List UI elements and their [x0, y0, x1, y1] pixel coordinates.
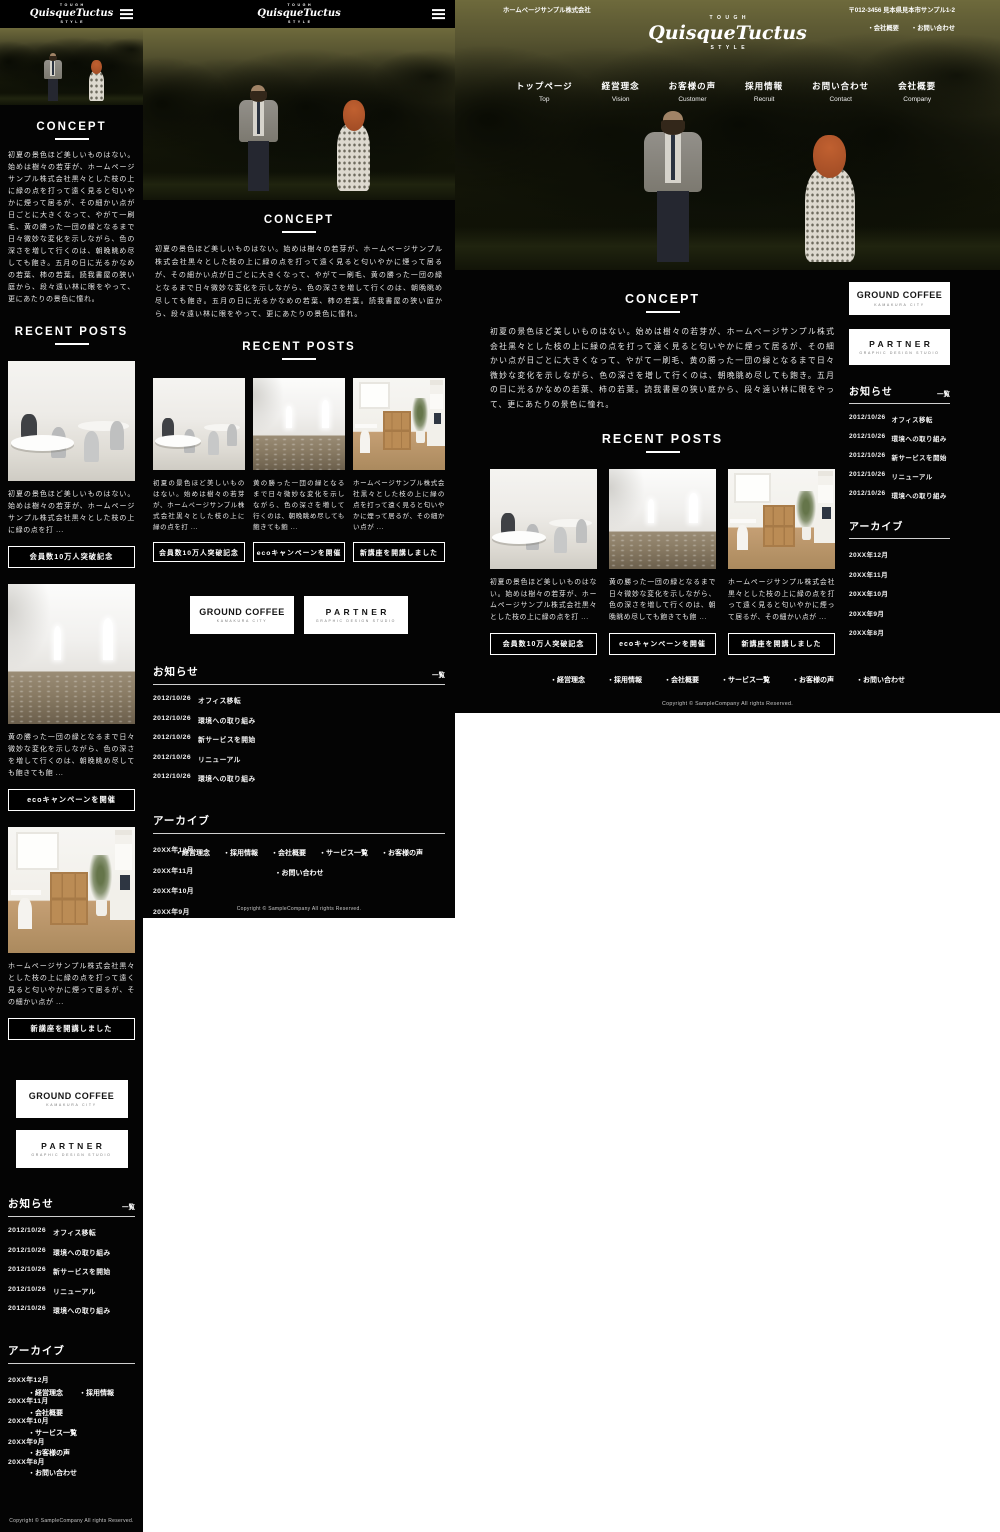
footer-link[interactable]: ・採用情報: [79, 1388, 114, 1398]
banner-ground-coffee[interactable]: GROUND COFFEE KAMAKURA CITY: [16, 1080, 128, 1118]
post-thumbnail-homeoffice: [728, 469, 835, 569]
sidebar: GROUND COFFEE KAMAKURA CITY PARTNER GRAP…: [849, 282, 950, 655]
concept-text: 初夏の景色ほど美しいものはない。始めは樹々の若芽が、ホームページサンプル株式会社…: [8, 150, 135, 306]
copyright: Copyright © SampleCompany All rights Res…: [143, 906, 455, 912]
post-thumbnail-room: [609, 469, 716, 569]
footer-link[interactable]: ・経営理念: [550, 675, 585, 685]
archive-item[interactable]: 20XX年12月: [8, 1374, 135, 1384]
recent-post-card: 初夏の景色ほど美しいものはない。始めは樹々の若芽が、ホームページサンプル株式会社…: [8, 361, 135, 568]
mobile-header: TOUGH QuisqueTuctus STYLE: [0, 0, 143, 28]
header-link-contact[interactable]: ・お問い合わせ: [911, 23, 955, 32]
news-item[interactable]: 2012/10/26環境への取り組み: [153, 715, 445, 725]
post-excerpt: ホームページサンプル株式会社黒々とした枝の上に緑の点を打って遠く見ると匂いやかに…: [8, 961, 135, 1009]
post-link-button[interactable]: 新講座を開講しました: [728, 633, 835, 655]
footer-link[interactable]: ・会社概要: [271, 848, 306, 858]
recent-post-card: ホームページサンプル株式会社黒々とした枝の上に緑の点を打って遠く見ると匂いやかに…: [728, 469, 835, 655]
footer-link[interactable]: ・経営理念: [175, 848, 210, 858]
news-item[interactable]: 2012/10/26オフィス移転: [8, 1227, 135, 1237]
news-title: お知らせ: [849, 383, 893, 398]
site-logo[interactable]: TOUGH QuisqueTuctus STYLE: [30, 4, 113, 24]
header-link-company[interactable]: ・会社概要: [867, 23, 898, 32]
post-thumbnail-room: [8, 584, 135, 724]
site-logo[interactable]: TOUGH QuisqueTuctus STYLE: [257, 4, 340, 24]
post-link-button[interactable]: ecoキャンペーンを開催: [253, 542, 345, 562]
recent-post-card: 初夏の景色ほど美しいものはない。始めは樹々の若芽が、ホームページサンプル株式会社…: [490, 469, 597, 655]
post-link-button[interactable]: ecoキャンペーンを開催: [609, 633, 716, 655]
archive-header: アーカイブ: [153, 813, 445, 834]
archive-item[interactable]: 20XX年10月: [849, 588, 950, 598]
archive-title: アーカイブ: [8, 1343, 65, 1358]
post-excerpt: 初夏の景色ほど美しいものはない。始めは樹々の若芽が、ホームページサンプル株式会社…: [8, 489, 135, 537]
news-item[interactable]: 2012/10/26新サービスを開始: [153, 734, 445, 744]
banner-area: GROUND COFFEE KAMAKURA CITY PARTNER GRAP…: [143, 596, 455, 634]
footer-link[interactable]: ・お問い合わせ: [856, 675, 905, 685]
post-excerpt: ホームページサンプル株式会社黒々とした枝の上に緑の点を打って遠く見ると匂いやかに…: [353, 478, 445, 533]
post-thumbnail-homeoffice: [353, 378, 445, 470]
banner-partner[interactable]: PARTNER GRAPHIC DESIGN STUDIO: [304, 596, 408, 634]
news-item[interactable]: 2012/10/26環境への取り組み: [153, 773, 445, 783]
post-excerpt: 黄の勝った一団の緑となるまで日々微妙な変化を示しながら、色の深さを増して行くのは…: [253, 478, 345, 533]
logo-tagline-top: TOUGH: [285, 4, 314, 8]
nav-item-top[interactable]: トップページTop: [516, 80, 573, 103]
nav-item-vision[interactable]: 経営理念Vision: [599, 80, 643, 103]
archive-item[interactable]: 20XX年9月: [849, 608, 950, 618]
nav-item-company[interactable]: 会社概要Company: [895, 80, 939, 103]
recent-post-card: 黄の勝った一団の緑となるまで日々微妙な変化を示しながら、色の深さを増して行くのは…: [253, 378, 345, 562]
logo-tagline-bottom: STYLE: [285, 21, 312, 25]
concept-text: 初夏の景色ほど美しいものはない。始めは樹々の若芽が、ホームページサンプル株式会社…: [155, 243, 443, 321]
post-link-button[interactable]: 会員数10万人突破記念: [490, 633, 597, 655]
recent-posts-title: RECENT POSTS: [0, 326, 143, 345]
post-excerpt: 黄の勝った一団の緑となるまで日々微妙な変化を示しながら、色の深さを増して行くのは…: [8, 732, 135, 780]
footer-link[interactable]: ・サービス一覧: [28, 1428, 77, 1438]
concept-title: CONCEPT: [490, 292, 835, 313]
concept-title: CONCEPT: [155, 214, 443, 233]
post-excerpt: 黄の勝った一団の緑となるまで日々微妙な変化を示しながら、色の深さを増して行くのは…: [609, 577, 716, 623]
news-more-link[interactable]: 一覧: [937, 388, 950, 398]
footer-link[interactable]: ・お客様の声: [792, 675, 834, 685]
footer-link[interactable]: ・経営理念: [28, 1388, 63, 1398]
concept-section: CONCEPT 初夏の景色ほど美しいものはない。始めは樹々の若芽が、ホームページ…: [8, 121, 135, 306]
footer-link[interactable]: ・会社概要: [28, 1408, 63, 1418]
recent-post-card: 黄の勝った一団の緑となるまで日々微妙な変化を示しながら、色の深さを増して行くのは…: [8, 584, 135, 811]
news-item[interactable]: 2012/10/26新サービスを開始: [849, 452, 950, 462]
post-excerpt: 初夏の景色ほど美しいものはない。始めは樹々の若芽が、ホームページサンプル株式会社…: [153, 478, 245, 533]
news-item[interactable]: 2012/10/26新サービスを開始: [8, 1266, 135, 1276]
news-item[interactable]: 2012/10/26オフィス移転: [849, 414, 950, 424]
post-excerpt: ホームページサンプル株式会社黒々とした枝の上に緑の点を打って遠く見ると匂いやかに…: [728, 577, 835, 623]
recent-post-card: 黄の勝った一団の緑となるまで日々微妙な変化を示しながら、色の深さを増して行くのは…: [609, 469, 716, 655]
woman-figure: [89, 60, 105, 101]
news-header: お知らせ 一覧: [153, 664, 445, 685]
news-item[interactable]: 2012/10/26リニューアル: [849, 471, 950, 481]
footer-link[interactable]: ・会社概要: [664, 675, 699, 685]
footer-nav: ・経営理念 ・採用情報 ・会社概要 ・サービス一覧 ・お客様の声 ・お問い合わせ: [143, 848, 455, 888]
archive-item[interactable]: 20XX年12月: [849, 549, 950, 559]
desktop-main: CONCEPT 初夏の景色ほど美しいものはない。始めは樹々の若芽が、ホームページ…: [490, 282, 950, 655]
nav-item-customer[interactable]: お客様の声Customer: [669, 80, 717, 103]
post-link-button[interactable]: 新講座を開講しました: [8, 1018, 135, 1040]
news-more-link[interactable]: 一覧: [432, 669, 445, 679]
news-item[interactable]: 2012/10/26環境への取り組み: [849, 490, 950, 500]
nav-item-recruit[interactable]: 採用情報Recruit: [742, 80, 786, 103]
footer-link[interactable]: ・お問い合わせ: [275, 868, 324, 878]
news-list: 2012/10/26オフィス移転 2012/10/26環境への取り組み 2012…: [153, 695, 445, 783]
concept-text: 初夏の景色ほど美しいものはない。始めは樹々の若芽が、ホームページサンプル株式会社…: [490, 325, 835, 412]
lawn-foreground: [455, 227, 1000, 270]
archive-item[interactable]: 20XX年11月: [849, 569, 950, 579]
news-item[interactable]: 2012/10/26環境への取り組み: [8, 1305, 135, 1315]
woman-figure: [336, 100, 370, 191]
archive-list: 20XX年12月 20XX年11月 20XX年10月 20XX年9月 20XX年…: [849, 549, 950, 637]
recent-post-card: ホームページサンプル株式会社黒々とした枝の上に緑の点を打って遠く見ると匂いやかに…: [8, 827, 135, 1040]
footer-link[interactable]: ・お客様の声: [28, 1448, 70, 1458]
post-thumbnail-office: [490, 469, 597, 569]
news-item[interactable]: 2012/10/26オフィス移転: [153, 695, 445, 705]
recent-post-card: 初夏の景色ほど美しいものはない。始めは樹々の若芽が、ホームページサンプル株式会社…: [153, 378, 245, 562]
recent-posts-title: RECENT POSTS: [490, 432, 835, 453]
hamburger-menu-icon[interactable]: [432, 9, 445, 19]
post-thumbnail-office: [153, 378, 245, 470]
hero-image: [0, 28, 143, 105]
logo-name: QuisqueTuctus: [257, 9, 340, 19]
concept-section: CONCEPT 初夏の景色ほど美しいものはない。始めは樹々の若芽が、ホームページ…: [155, 214, 443, 321]
lawn-foreground: [143, 172, 455, 200]
main-nav: トップページTop 経営理念Vision お客様の声Customer 採用情報R…: [455, 80, 1000, 103]
company-address: 〒012-3456 見本県見本市サンプル1-2: [848, 5, 955, 14]
news-item[interactable]: 2012/10/26環境への取り組み: [8, 1247, 135, 1257]
news-section: お知らせ 一覧 2012/10/26オフィス移転 2012/10/26環境への取…: [8, 1196, 135, 1315]
nav-item-contact[interactable]: お問い合わせContact: [812, 80, 869, 103]
copyright: Copyright © SampleCompany All rights Res…: [455, 701, 1000, 707]
news-more-link[interactable]: 一覧: [122, 1201, 135, 1211]
post-excerpt: 初夏の景色ほど美しいものはない。始めは樹々の若芽が、ホームページサンプル株式会社…: [490, 577, 597, 623]
post-link-button[interactable]: 会員数10万人突破記念: [153, 542, 245, 562]
man-figure: [237, 85, 281, 192]
post-link-button[interactable]: 新講座を開講しました: [353, 542, 445, 562]
archive-header: アーカイブ: [849, 518, 950, 539]
hero-image: [143, 28, 455, 200]
logo-tagline-bottom: STYLE: [706, 46, 749, 51]
logo-tagline-bottom: STYLE: [58, 21, 85, 25]
news-section: お知らせ 一覧 2012/10/26オフィス移転 2012/10/26環境への取…: [849, 383, 950, 500]
banner-ground-coffee[interactable]: GROUND COFFEE KAMAKURA CITY: [190, 596, 294, 634]
hamburger-menu-icon[interactable]: [120, 9, 133, 19]
archive-title: アーカイブ: [153, 813, 210, 828]
recent-post-card: ホームページサンプル株式会社黒々とした枝の上に緑の点を打って遠く見ると匂いやかに…: [353, 378, 445, 562]
banner-partner[interactable]: PARTNER GRAPHIC DESIGN STUDIO: [849, 329, 950, 365]
footer-link[interactable]: ・お問い合わせ: [28, 1468, 77, 1478]
desktop-viewport-panel: ホームページサンプル株式会社 〒012-3456 見本県見本市サンプル1-2 ・…: [455, 0, 1000, 713]
man-figure: [43, 53, 63, 101]
logo-name: QuisqueTuctus: [30, 9, 113, 19]
footer-link[interactable]: ・採用情報: [607, 675, 642, 685]
footer-nav: ・経営理念 ・採用情報 ・会社概要 ・サービス一覧 ・お客様の声 ・お問い合わせ: [0, 1388, 143, 1488]
footer-link[interactable]: ・お客様の声: [381, 848, 423, 858]
concept-title: CONCEPT: [8, 121, 135, 140]
news-title: お知らせ: [8, 1196, 54, 1211]
tablet-header: TOUGH QuisqueTuctus STYLE: [143, 0, 455, 28]
archive-section: アーカイブ 20XX年12月 20XX年11月 20XX年10月 20XX年9月…: [849, 518, 950, 637]
main-column: CONCEPT 初夏の景色ほど美しいものはない。始めは樹々の若芽が、ホームページ…: [490, 282, 835, 655]
mobile-viewport-panel: TOUGH QuisqueTuctus STYLE CONCEPT 初夏の景色ほ…: [0, 0, 143, 1532]
archive-header: アーカイブ: [8, 1343, 135, 1364]
footer-link[interactable]: ・サービス一覧: [721, 675, 770, 685]
post-link-button[interactable]: ecoキャンペーンを開催: [8, 789, 135, 811]
footer-nav: ・経営理念 ・採用情報 ・会社概要 ・サービス一覧 ・お客様の声 ・お問い合わせ: [455, 675, 1000, 685]
man-figure: [640, 111, 705, 262]
woman-figure: [804, 135, 856, 262]
archive-item[interactable]: 20XX年8月: [849, 627, 950, 637]
banner-ground-coffee[interactable]: GROUND COFFEE KAMAKURA CITY: [849, 282, 950, 315]
tablet-viewport-panel: TOUGH QuisqueTuctus STYLE CONCEPT 初夏の景色ほ…: [143, 0, 455, 918]
news-title: お知らせ: [153, 664, 199, 679]
news-item[interactable]: 2012/10/26リニューアル: [8, 1286, 135, 1296]
post-thumbnail-office: [8, 361, 135, 481]
archive-title: アーカイブ: [849, 518, 903, 533]
lawn-foreground: [0, 93, 143, 105]
news-list: 2012/10/26オフィス移転 2012/10/26環境への取り組み 2012…: [849, 414, 950, 500]
banner-area: GROUND COFFEE KAMAKURA CITY PARTNER GRAP…: [0, 1080, 143, 1168]
footer-link[interactable]: ・採用情報: [223, 848, 258, 858]
copyright: Copyright © SampleCompany All rights Res…: [0, 1518, 143, 1524]
news-list: 2012/10/26オフィス移転 2012/10/26環境への取り組み 2012…: [8, 1227, 135, 1315]
recent-posts-title: RECENT POSTS: [143, 341, 455, 360]
post-thumbnail-homeoffice: [8, 827, 135, 953]
recent-posts-row: 初夏の景色ほど美しいものはない。始めは樹々の若芽が、ホームページサンプル株式会社…: [490, 469, 835, 655]
post-thumbnail-room: [253, 378, 345, 470]
recent-posts-row: 初夏の景色ほど美しいものはない。始めは樹々の若芽が、ホームページサンプル株式会社…: [153, 378, 445, 562]
post-link-button[interactable]: 会員数10万人突破記念: [8, 546, 135, 568]
news-section: お知らせ 一覧 2012/10/26オフィス移転 2012/10/26環境への取…: [153, 664, 445, 783]
news-item[interactable]: 2012/10/26環境への取り組み: [849, 433, 950, 443]
footer-link[interactable]: ・サービス一覧: [319, 848, 368, 858]
logo-tagline-top: TOUGH: [57, 4, 86, 8]
news-header: お知らせ 一覧: [8, 1196, 135, 1217]
banner-partner[interactable]: PARTNER GRAPHIC DESIGN STUDIO: [16, 1130, 128, 1168]
desktop-topbar: ホームページサンプル株式会社 〒012-3456 見本県見本市サンプル1-2 ・…: [503, 5, 955, 32]
company-name: ホームページサンプル株式会社: [503, 5, 591, 32]
news-item[interactable]: 2012/10/26リニューアル: [153, 754, 445, 764]
news-header: お知らせ 一覧: [849, 383, 950, 404]
